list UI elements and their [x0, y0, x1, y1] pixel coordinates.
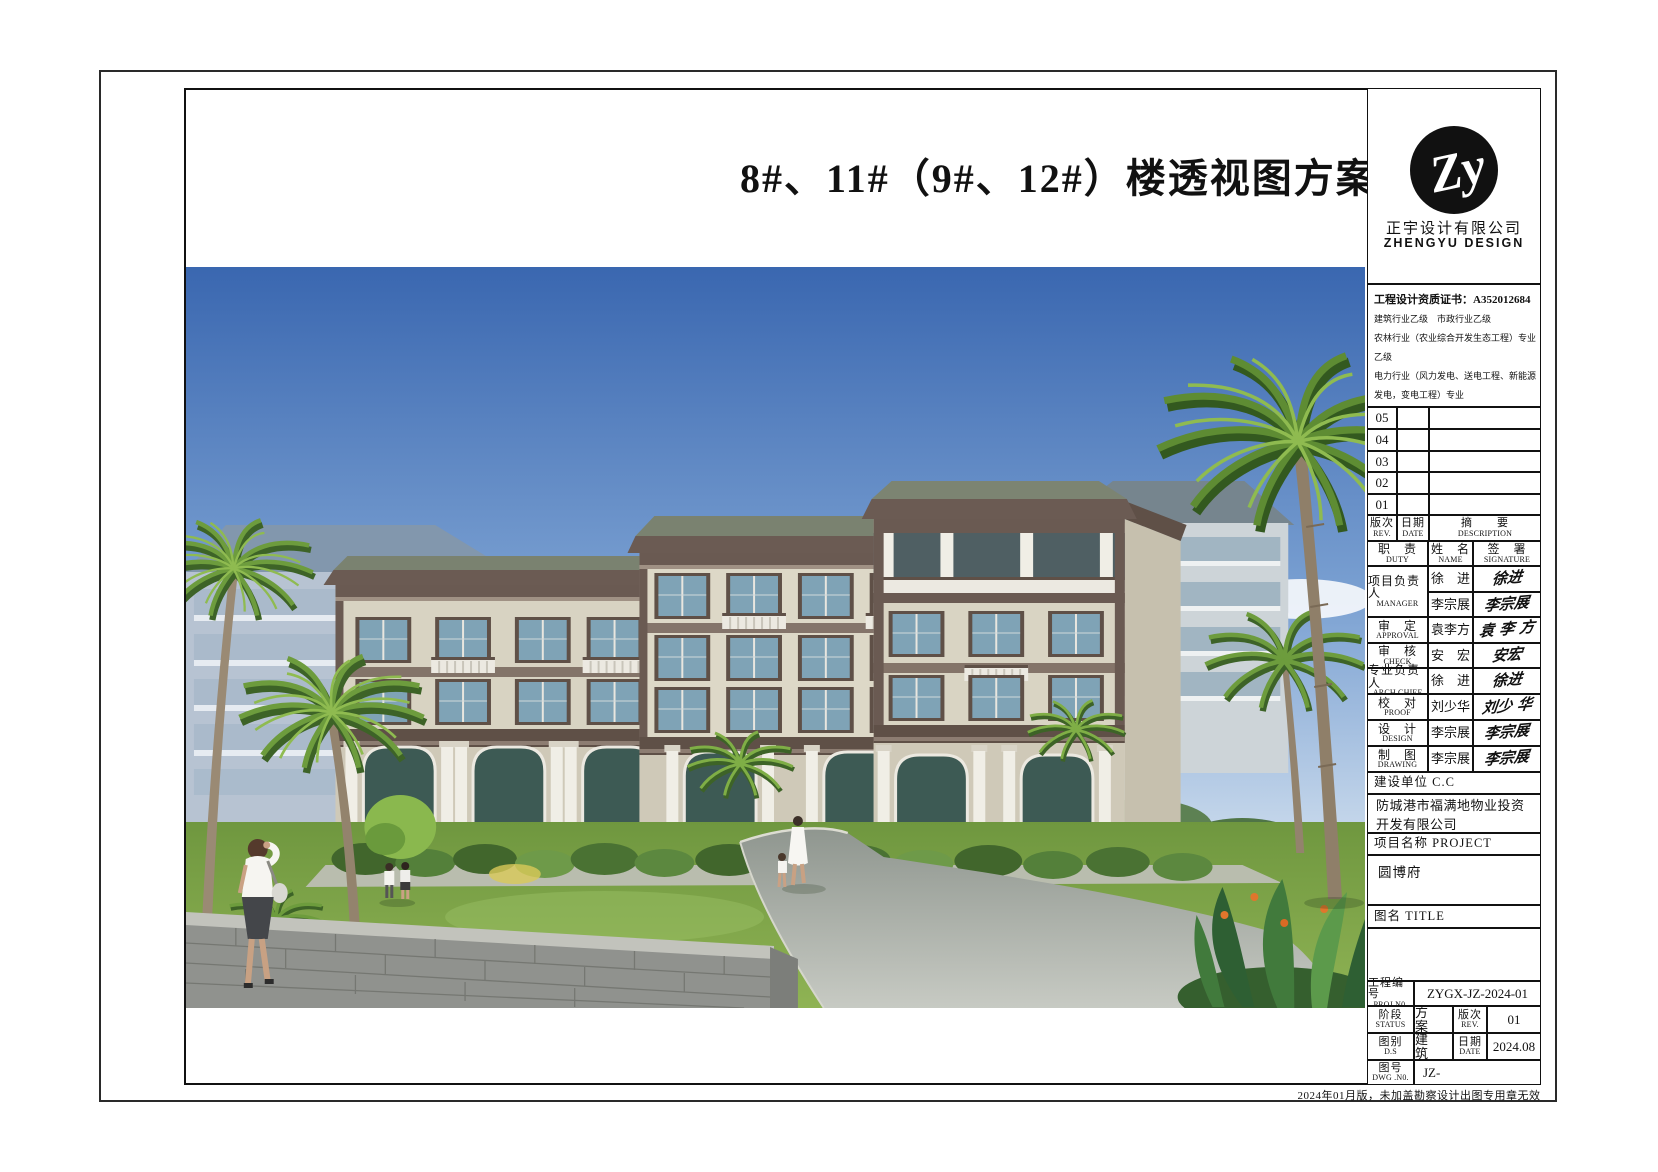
- logo-cell: Zy 正宇设计有限公司 ZHENGYU DESIGN: [1367, 88, 1541, 284]
- certificate-box: 工程设计资质证书：A352012684 建筑行业乙级 市政行业乙级 农林行业（农…: [1367, 284, 1541, 407]
- rev-date-empty: [1397, 451, 1429, 472]
- drawing-sheet: 8#、11#（9#、12#）楼透视图方案一: [0, 0, 1658, 1172]
- rev-date-empty: [1397, 429, 1429, 451]
- name-cell: 徐 进: [1428, 668, 1473, 694]
- project-name: 圆博府: [1367, 855, 1541, 905]
- rev-number: 03: [1367, 451, 1397, 472]
- rev-desc-empty: [1429, 494, 1541, 515]
- drawing-title: 8#、11#（9#、12#）楼透视图方案一: [740, 146, 1420, 204]
- signature-cell: 刘少 华: [1473, 694, 1541, 720]
- duty-approval: 审 定 APPROVAL: [1367, 617, 1428, 643]
- status-label: 阶段 STATUS: [1367, 1006, 1414, 1033]
- name-cell: 李宗展: [1428, 720, 1473, 746]
- rev-number: 05: [1367, 407, 1397, 429]
- name-cell: 李宗展: [1428, 592, 1473, 617]
- rev-header-rev: 版次 REV.: [1367, 515, 1397, 541]
- validity-note: 2024年01月版，未加盖勘察设计出图专用章无效: [1295, 1087, 1543, 1103]
- drawing-title-empty: [1367, 928, 1541, 981]
- dwg-no-value: JZ-: [1414, 1060, 1541, 1085]
- category-value: 建 筑: [1414, 1033, 1453, 1060]
- signature-cell: 安宏: [1473, 643, 1541, 668]
- duty-design: 设 计 DESIGN: [1367, 720, 1428, 746]
- name-cell: 刘少华: [1428, 694, 1473, 720]
- rev-desc-empty: [1429, 472, 1541, 494]
- proj-no-value: ZYGX-JZ-2024-01: [1414, 981, 1541, 1006]
- signature-cell: 徐进: [1473, 566, 1541, 592]
- certificate-line: 建筑行业乙级 市政行业乙级: [1374, 310, 1491, 329]
- rendering-image: [186, 267, 1365, 1008]
- dwg-no-label: 图号 DWG .N0.: [1367, 1060, 1414, 1085]
- project-label: 项目名称 PROJECT: [1367, 833, 1541, 855]
- rev-date-empty: [1397, 407, 1429, 429]
- company-logo-icon: Zy: [1406, 122, 1502, 218]
- drawing-title-label: 图名 TITLE: [1367, 905, 1541, 928]
- status-rev-value: 01: [1487, 1006, 1541, 1033]
- title-block: Zy 正宇设计有限公司 ZHENGYU DESIGN 工程设计资质证书：A352…: [1367, 88, 1541, 1085]
- rev-number: 04: [1367, 429, 1397, 451]
- name-header: 姓 名 NAME: [1428, 541, 1473, 566]
- duty-manager: 项目负责人 MANAGER: [1367, 566, 1428, 617]
- duty-header: 职 责 DUTY: [1367, 541, 1428, 566]
- certificate-line: 工程设计资质证书：A352012684: [1374, 290, 1530, 310]
- date-value: 2024.08: [1487, 1033, 1541, 1060]
- signature-cell: 袁 李 方: [1473, 617, 1541, 643]
- client-label: 建设单位 C.C: [1367, 772, 1541, 794]
- status-value: 方 案: [1414, 1006, 1453, 1033]
- name-cell: 李宗展: [1428, 746, 1473, 772]
- name-cell: 袁李方: [1428, 617, 1473, 643]
- signature-header: 签 署 SIGNATURE: [1473, 541, 1541, 566]
- name-cell: 徐 进: [1428, 566, 1473, 592]
- rev-desc-empty: [1429, 407, 1541, 429]
- rev-number: 01: [1367, 494, 1397, 515]
- signature-cell: 李宗展: [1473, 746, 1541, 772]
- status-rev-label: 版次 REV.: [1453, 1006, 1487, 1033]
- company-name-en: ZHENGYU DESIGN: [1384, 237, 1525, 250]
- client-value: 防城港市福满地物业投资开发有限公司: [1367, 794, 1541, 833]
- name-cell: 安 宏: [1428, 643, 1473, 668]
- right-wing: [862, 481, 1187, 882]
- duty-proof: 校 对 PROOF: [1367, 694, 1428, 720]
- rev-desc-empty: [1429, 451, 1541, 472]
- signature-cell: 李宗展: [1473, 720, 1541, 746]
- category-label: 图别 D.S: [1367, 1033, 1414, 1060]
- rev-date-empty: [1397, 494, 1429, 515]
- rev-desc-empty: [1429, 429, 1541, 451]
- rev-header-desc: 摘 要 DESCRIPTION: [1429, 515, 1541, 541]
- duty-drawing: 制 图 DRAWING: [1367, 746, 1428, 772]
- company-name-cn: 正宇设计有限公司: [1386, 222, 1522, 238]
- date-label: 日期 DATE: [1453, 1033, 1487, 1060]
- duty-arch-chief: 专业负责人 ARCH.CHIEF: [1367, 668, 1428, 694]
- certificate-line: 电力行业（风力发电、送电工程、新能源发电，变电工程）专业: [1374, 367, 1536, 405]
- rev-header-date: 日期 DATE: [1397, 515, 1429, 541]
- rev-number: 02: [1367, 472, 1397, 494]
- signature-cell: 徐进: [1473, 668, 1541, 694]
- rev-date-empty: [1397, 472, 1429, 494]
- signature-cell: 李宗展: [1473, 592, 1541, 617]
- certificate-line: 农林行业（农业综合开发生态工程）专业乙级: [1374, 329, 1536, 367]
- proj-no-label: 工程编号 PROJ.N0.: [1367, 981, 1414, 1006]
